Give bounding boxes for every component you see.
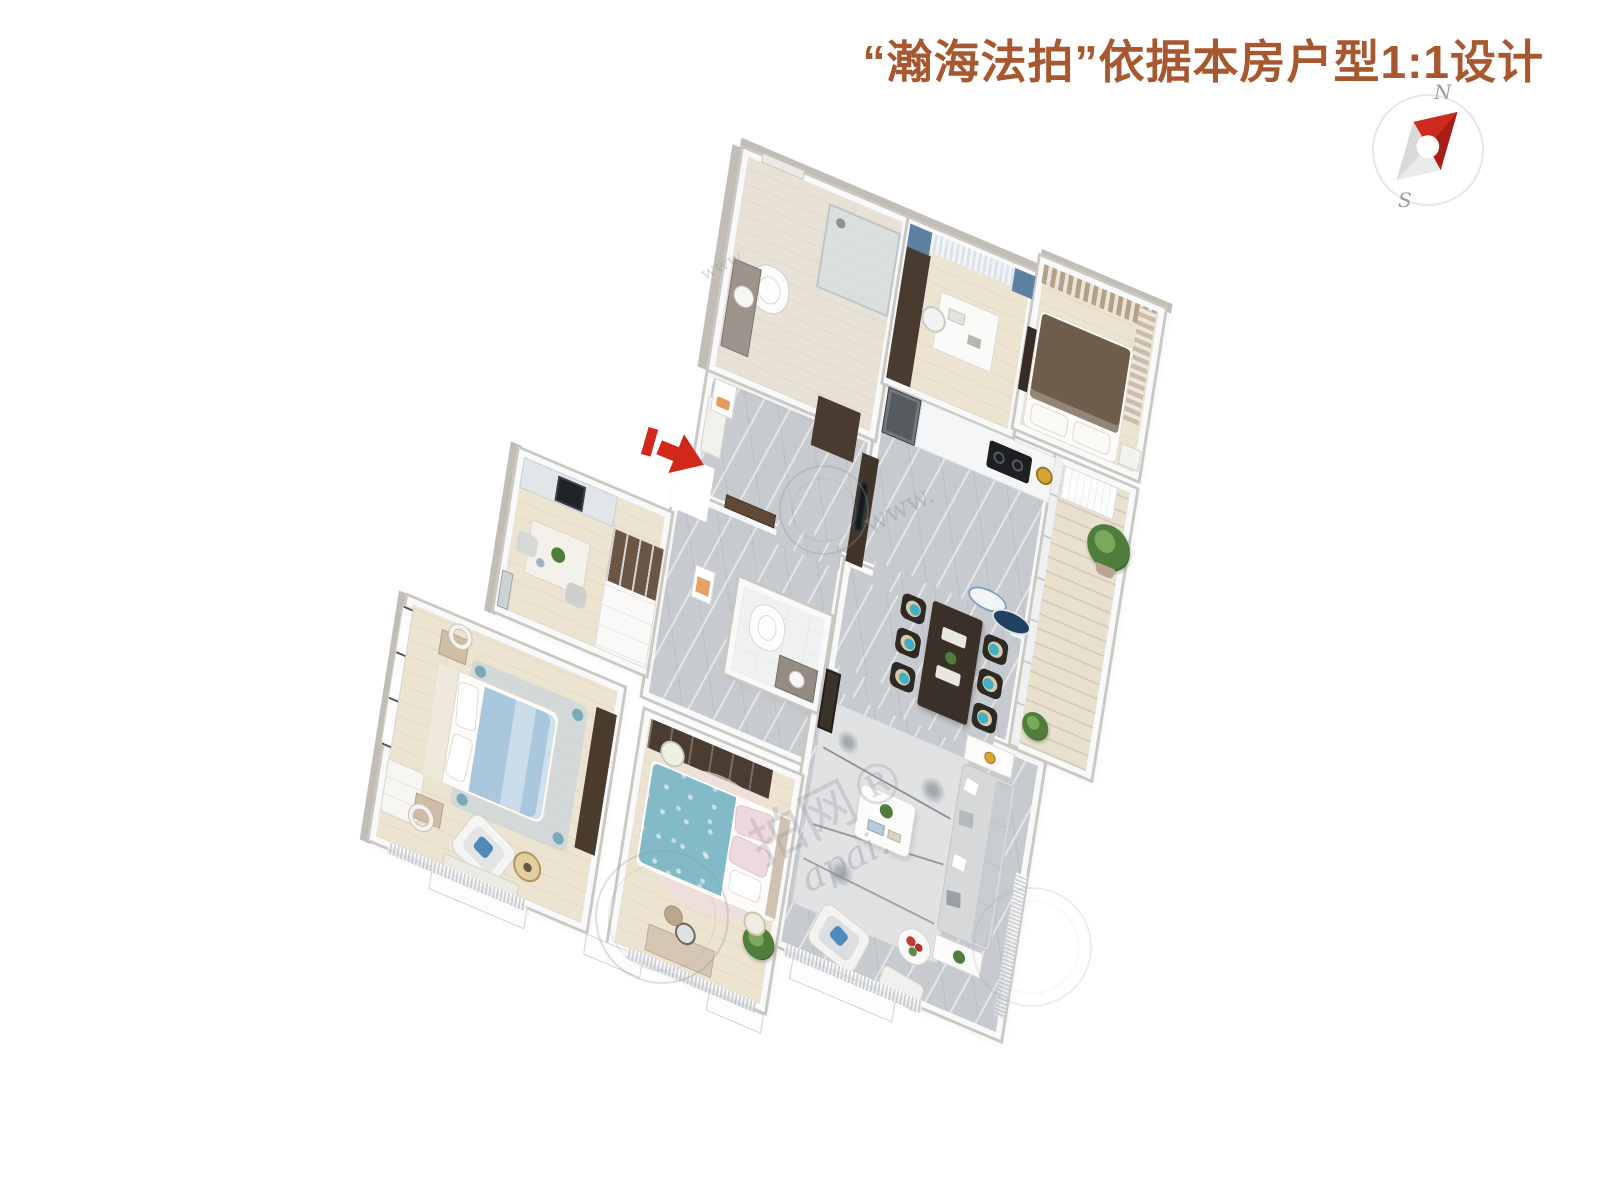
rug-motif xyxy=(552,830,565,846)
compass-south-label: S xyxy=(1398,188,1412,212)
table-decor xyxy=(523,861,533,873)
page: www www. 拍网® apai. “瀚海法拍”依据本房户型1:1设计 N S xyxy=(0,0,1600,1200)
books xyxy=(887,829,901,843)
toilet-seat xyxy=(756,612,778,645)
shower-head-icon xyxy=(835,217,846,230)
rug-motif xyxy=(825,853,857,893)
arrow-bar xyxy=(641,427,658,457)
sink xyxy=(788,668,806,691)
sign-art xyxy=(716,396,730,411)
books xyxy=(867,819,885,836)
burner xyxy=(1011,457,1024,473)
sofa-pillow xyxy=(959,810,974,829)
table-lamp xyxy=(984,750,997,766)
table-setting xyxy=(941,627,967,649)
sofa-pillow xyxy=(946,890,960,909)
burner xyxy=(993,450,1006,466)
table-plant xyxy=(952,948,966,965)
sofa-pillow xyxy=(962,776,980,797)
rug-motif xyxy=(571,707,584,723)
sink xyxy=(732,282,756,311)
table-plant xyxy=(550,545,566,565)
desk-items xyxy=(947,308,965,326)
desk-items xyxy=(967,334,981,349)
bed-pillow xyxy=(455,681,479,733)
compass-icon: N S xyxy=(1372,88,1484,206)
table-plant xyxy=(879,802,894,821)
rug-motif xyxy=(917,770,949,810)
table-setting xyxy=(935,665,961,687)
table-plant xyxy=(944,650,957,666)
rug-motif xyxy=(456,792,469,808)
table-decor xyxy=(536,557,546,569)
arrow-head xyxy=(668,434,712,484)
sofa-pillow xyxy=(951,853,968,874)
poster-art xyxy=(695,576,710,597)
